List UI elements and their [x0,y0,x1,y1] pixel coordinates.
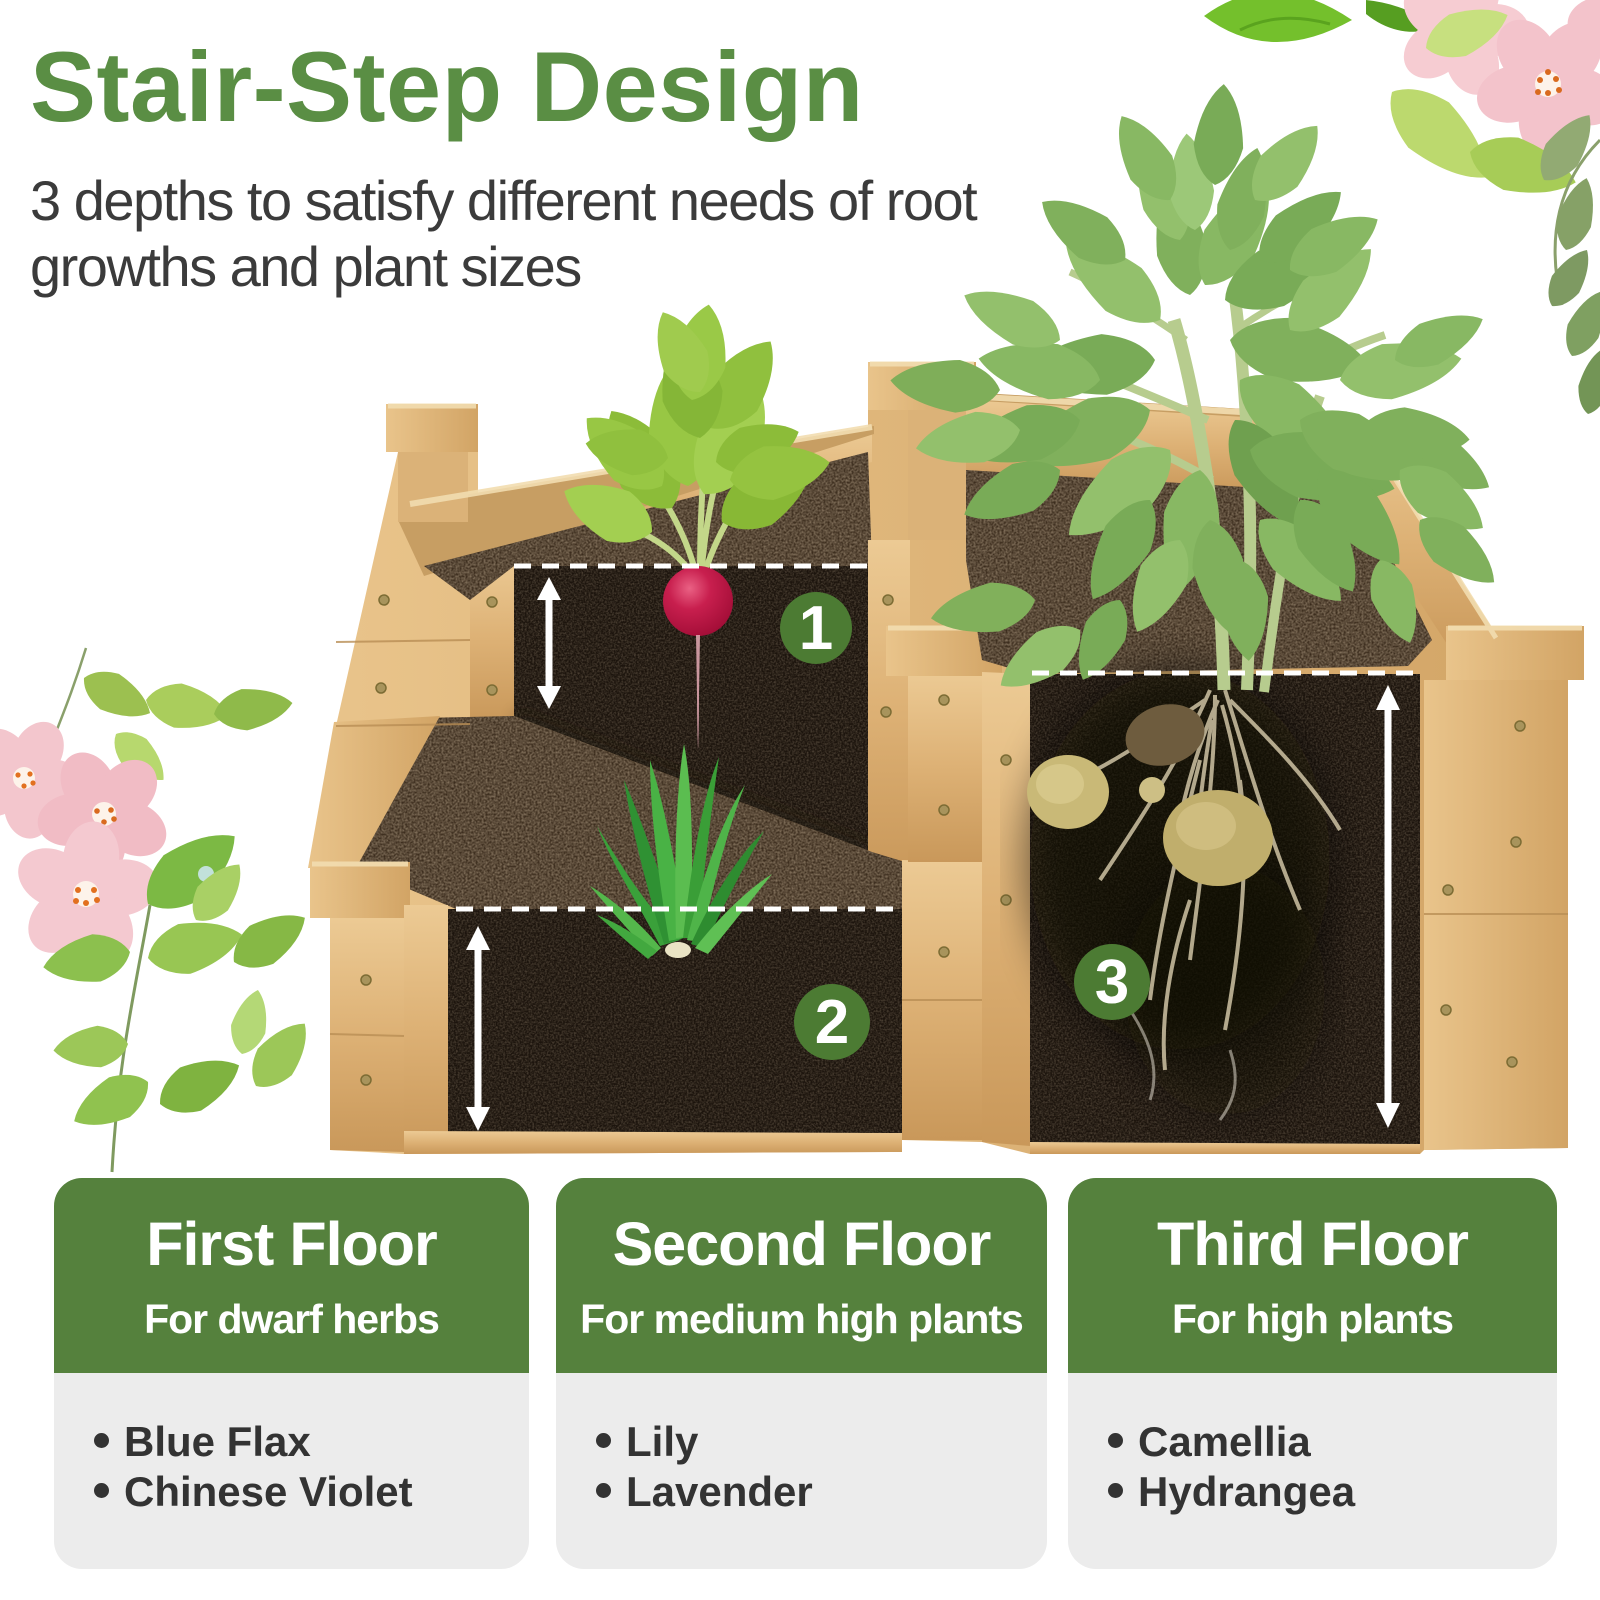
svg-text:3: 3 [1095,948,1129,1017]
svg-text:2: 2 [815,988,849,1057]
svg-text:1: 1 [799,594,833,663]
